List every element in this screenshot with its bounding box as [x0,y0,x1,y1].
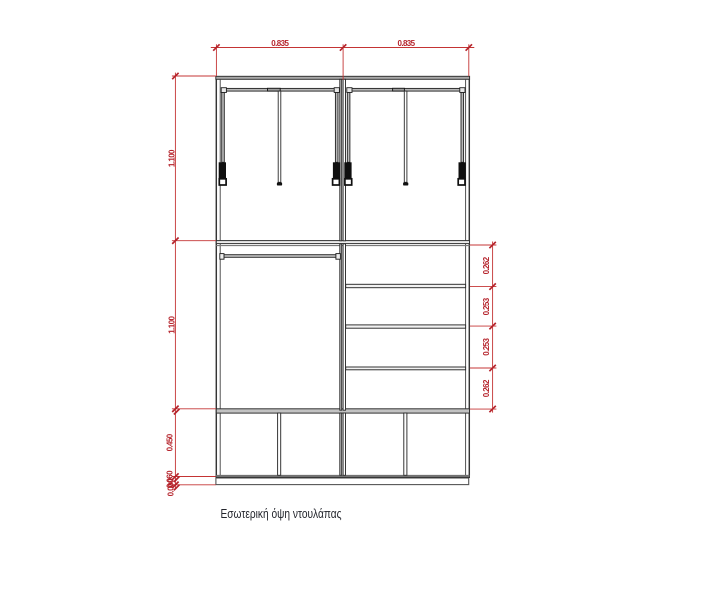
svg-text:Εσωτερική όψη ντουλάπας: Εσωτερική όψη ντουλάπας [221,506,342,521]
svg-text:1.100: 1.100 [168,149,177,167]
svg-text:1.100: 1.100 [168,316,177,334]
svg-text:0.835: 0.835 [397,39,415,48]
svg-text:0.253: 0.253 [482,297,491,315]
svg-text:0.253: 0.253 [482,338,491,356]
svg-text:0.450: 0.450 [165,433,174,451]
svg-text:0.835: 0.835 [271,39,289,48]
svg-text:0.000: 0.000 [167,478,176,496]
svg-text:0.262: 0.262 [482,256,491,274]
svg-text:0.262: 0.262 [482,379,491,397]
